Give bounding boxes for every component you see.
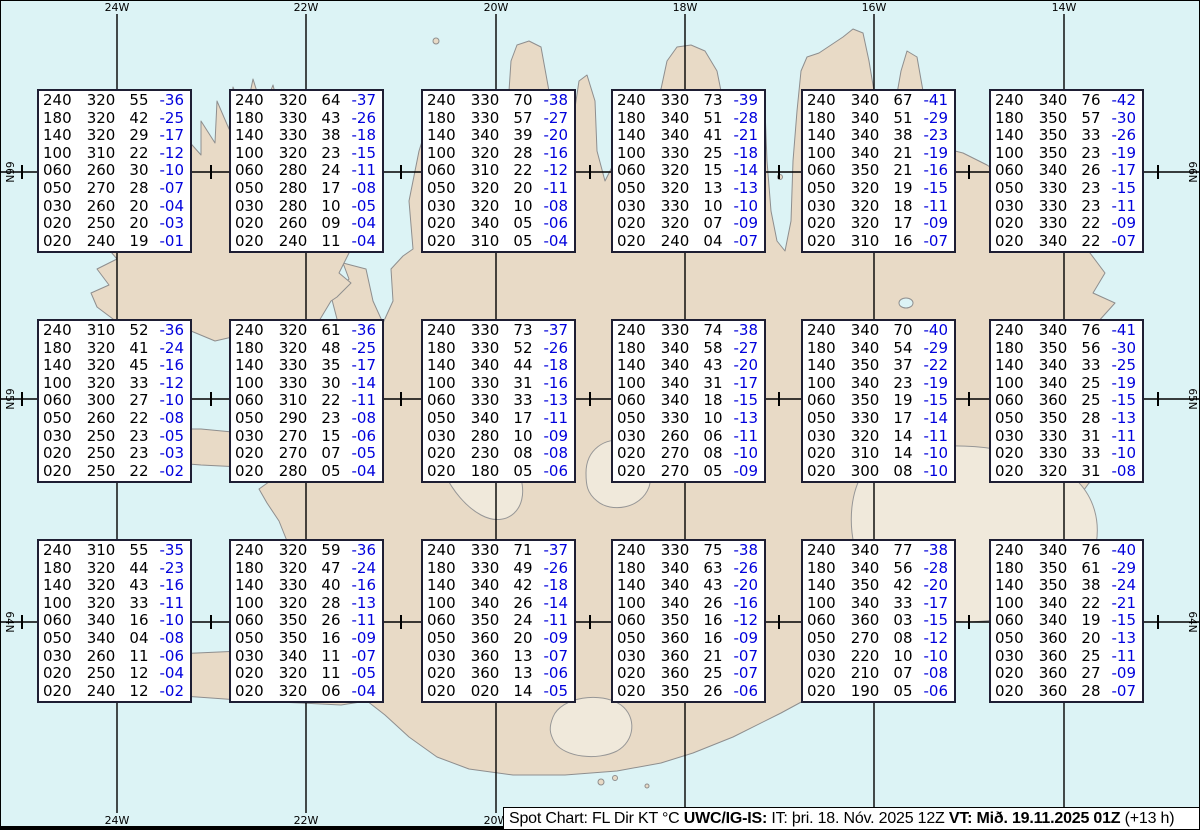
flight-level: 030 — [43, 198, 87, 216]
flight-level: 180 — [235, 340, 279, 358]
flight-level: 020 — [427, 233, 471, 251]
spot-row: 10034023-19 — [807, 375, 948, 393]
spot-row: 03033010-10 — [617, 198, 758, 216]
spot-row: 10034022-21 — [995, 595, 1136, 613]
wind-speed-kt: 15 — [703, 162, 733, 180]
spot-row: 10034033-17 — [807, 595, 948, 613]
temperature-c: -15 — [924, 180, 949, 198]
temperature-c: -26 — [544, 340, 569, 358]
spot-row: 03026011-06 — [43, 648, 184, 666]
temperature-c: -20 — [734, 577, 759, 595]
wind-speed-kt: 64 — [321, 92, 351, 110]
flight-level: 240 — [617, 92, 661, 110]
flight-level: 050 — [427, 410, 471, 428]
wind-direction: 330 — [661, 322, 704, 340]
wind-direction: 190 — [851, 683, 894, 701]
flight-level: 030 — [235, 648, 279, 666]
wind-speed-kt: 48 — [321, 340, 351, 358]
wind-direction: 350 — [851, 577, 894, 595]
wind-speed-kt: 27 — [1081, 665, 1111, 683]
wind-speed-kt: 18 — [893, 198, 923, 216]
wind-direction: 330 — [661, 92, 704, 110]
temperature-c: -30 — [1112, 340, 1137, 358]
temperature-c: -10 — [924, 445, 949, 463]
lon-label-top: 20W — [484, 2, 509, 14]
wind-speed-kt: 22 — [129, 145, 159, 163]
wind-direction: 330 — [1039, 198, 1082, 216]
wind-speed-kt: 52 — [513, 340, 543, 358]
spot-row: 18035057-30 — [995, 110, 1136, 128]
wind-speed-kt: 75 — [703, 542, 733, 560]
spot-row: 18033052-26 — [427, 340, 568, 358]
lat-label-left: 64N — [3, 611, 15, 632]
wind-direction: 320 — [279, 340, 322, 358]
spot-row: 14035037-22 — [807, 357, 948, 375]
wind-speed-kt: 08 — [893, 630, 923, 648]
wind-direction: 310 — [279, 392, 322, 410]
wind-speed-kt: 33 — [129, 595, 159, 613]
wind-speed-kt: 28 — [513, 145, 543, 163]
wind-speed-kt: 27 — [129, 392, 159, 410]
wind-direction: 320 — [279, 665, 322, 683]
wind-speed-kt: 03 — [893, 612, 923, 630]
wind-speed-kt: 35 — [321, 357, 351, 375]
spot-row: 02025020-03 — [43, 215, 184, 233]
temperature-c: -11 — [734, 428, 759, 446]
flight-level: 100 — [995, 595, 1039, 613]
wind-direction: 330 — [661, 198, 704, 216]
flight-level: 180 — [995, 340, 1039, 358]
spot-row: 24034076-41 — [995, 322, 1136, 340]
wind-direction: 340 — [661, 127, 704, 145]
lon-label-top: 24W — [105, 2, 130, 14]
wind-direction: 340 — [661, 577, 704, 595]
wind-speed-kt: 28 — [1081, 683, 1111, 701]
wind-speed-kt: 77 — [893, 542, 923, 560]
spot-row: 02036027-09 — [995, 665, 1136, 683]
wind-direction: 250 — [87, 445, 130, 463]
wind-direction: 320 — [851, 198, 894, 216]
wind-direction: 240 — [87, 683, 130, 701]
glacier-myrdalsjokull — [550, 697, 632, 756]
temperature-c: -16 — [544, 375, 569, 393]
spot-row: 18034051-29 — [807, 110, 948, 128]
temperature-c: -11 — [924, 198, 949, 216]
wind-speed-kt: 19 — [1081, 612, 1111, 630]
temperature-c: -27 — [734, 340, 759, 358]
wind-speed-kt: 20 — [1081, 630, 1111, 648]
temperature-c: -21 — [734, 127, 759, 145]
flight-level: 020 — [235, 445, 279, 463]
flight-level: 240 — [807, 542, 851, 560]
wind-direction: 340 — [1039, 595, 1082, 613]
wind-direction: 340 — [1039, 92, 1082, 110]
flight-level: 100 — [427, 375, 471, 393]
temperature-c: -18 — [352, 127, 377, 145]
temperature-c: -28 — [734, 110, 759, 128]
flight-level: 180 — [807, 560, 851, 578]
wind-direction: 350 — [851, 357, 894, 375]
wind-speed-kt: 23 — [893, 375, 923, 393]
spot-row: 06033033-13 — [427, 392, 568, 410]
spot-row: 06032015-14 — [617, 162, 758, 180]
flight-level: 050 — [617, 410, 661, 428]
temperature-c: -29 — [924, 340, 949, 358]
temperature-c: -36 — [352, 322, 377, 340]
wind-direction: 340 — [661, 340, 704, 358]
flight-level: 140 — [235, 127, 279, 145]
spot-row: 14034039-20 — [427, 127, 568, 145]
spot-row: 24033073-39 — [617, 92, 758, 110]
temperature-c: -37 — [352, 92, 377, 110]
wind-direction: 340 — [851, 375, 894, 393]
wind-direction: 360 — [471, 630, 514, 648]
wind-speed-kt: 10 — [893, 648, 923, 666]
wind-direction: 340 — [661, 560, 704, 578]
wind-speed-kt: 52 — [129, 322, 159, 340]
spot-row: 10032028-16 — [427, 145, 568, 163]
wind-speed-kt: 14 — [513, 683, 543, 701]
wind-direction: 320 — [279, 542, 322, 560]
flight-level: 050 — [43, 410, 87, 428]
wind-direction: 320 — [471, 198, 514, 216]
spot-row: 10034026-14 — [427, 595, 568, 613]
wind-direction: 300 — [851, 463, 894, 481]
spot-row: 02019005-06 — [807, 683, 948, 701]
wind-direction: 340 — [279, 648, 322, 666]
temperature-c: -10 — [924, 648, 949, 666]
spot-box: 24033074-3818034058-2714034043-201003403… — [611, 319, 766, 483]
spot-row: 06034026-17 — [995, 162, 1136, 180]
flight-level: 140 — [427, 577, 471, 595]
wind-speed-kt: 42 — [893, 577, 923, 595]
flight-level: 180 — [807, 340, 851, 358]
temperature-c: -36 — [352, 542, 377, 560]
wind-speed-kt: 57 — [1081, 110, 1111, 128]
wind-speed-kt: 05 — [321, 463, 351, 481]
wind-speed-kt: 23 — [1081, 198, 1111, 216]
flight-level: 180 — [235, 560, 279, 578]
wind-direction: 210 — [851, 665, 894, 683]
wind-speed-kt: 22 — [129, 410, 159, 428]
wind-speed-kt: 22 — [513, 162, 543, 180]
wind-speed-kt: 26 — [703, 683, 733, 701]
temperature-c: -04 — [160, 198, 185, 216]
wind-speed-kt: 07 — [703, 215, 733, 233]
wind-direction: 260 — [87, 410, 130, 428]
wind-direction: 360 — [851, 612, 894, 630]
spot-row: 02032031-08 — [995, 463, 1136, 481]
wind-speed-kt: 28 — [321, 595, 351, 613]
spot-row: 05033017-14 — [807, 410, 948, 428]
wind-direction: 330 — [279, 375, 322, 393]
wind-direction: 350 — [661, 683, 704, 701]
temperature-c: -12 — [544, 162, 569, 180]
flight-level: 020 — [995, 233, 1039, 251]
temperature-c: -11 — [924, 428, 949, 446]
temperature-c: -06 — [734, 683, 759, 701]
spot-row: 14035042-20 — [807, 577, 948, 595]
wind-direction: 330 — [471, 92, 514, 110]
flight-level: 030 — [995, 198, 1039, 216]
wind-direction: 320 — [661, 180, 704, 198]
temperature-c: -08 — [1112, 463, 1137, 481]
lon-label-top: 22W — [294, 2, 319, 14]
flight-level: 060 — [807, 392, 851, 410]
island — [645, 784, 649, 788]
temperature-c: -26 — [352, 110, 377, 128]
wind-direction: 340 — [471, 215, 514, 233]
temperature-c: -11 — [544, 180, 569, 198]
temperature-c: -17 — [734, 375, 759, 393]
spot-row: 03027015-06 — [235, 428, 376, 446]
spot-row: 03036013-07 — [427, 648, 568, 666]
temperature-c: -17 — [352, 357, 377, 375]
wind-direction: 020 — [471, 683, 514, 701]
wind-speed-kt: 63 — [703, 560, 733, 578]
spot-row: 02031005-04 — [427, 233, 568, 251]
wind-direction: 320 — [279, 560, 322, 578]
wind-speed-kt: 31 — [1081, 428, 1111, 446]
spot-row: 14034038-23 — [807, 127, 948, 145]
temperature-c: -08 — [544, 445, 569, 463]
wind-direction: 310 — [87, 145, 130, 163]
temperature-c: -41 — [924, 92, 949, 110]
flight-level: 240 — [235, 92, 279, 110]
temperature-c: -13 — [1112, 630, 1137, 648]
wind-direction: 320 — [87, 375, 130, 393]
flight-level: 020 — [807, 445, 851, 463]
flight-level: 180 — [995, 110, 1039, 128]
flight-level: 060 — [427, 612, 471, 630]
spot-row: 02036013-06 — [427, 665, 568, 683]
spot-row: 10034031-17 — [617, 375, 758, 393]
flight-level: 060 — [617, 612, 661, 630]
spot-row: 18032042-25 — [43, 110, 184, 128]
wind-direction: 360 — [471, 648, 514, 666]
wind-direction: 340 — [661, 392, 704, 410]
spot-row: 03033031-11 — [995, 428, 1136, 446]
wind-direction: 320 — [279, 145, 322, 163]
temperature-c: -14 — [544, 595, 569, 613]
footer-text-bold: UWC/IG-IS: — [684, 810, 767, 828]
temperature-c: -02 — [160, 683, 185, 701]
flight-level: 180 — [235, 110, 279, 128]
wind-direction: 330 — [471, 375, 514, 393]
flight-level: 020 — [807, 215, 851, 233]
flight-level: 060 — [807, 162, 851, 180]
flight-level: 140 — [427, 127, 471, 145]
wind-speed-kt: 54 — [893, 340, 923, 358]
wind-speed-kt: 25 — [1081, 392, 1111, 410]
spot-row: 14034033-25 — [995, 357, 1136, 375]
wind-speed-kt: 11 — [321, 233, 351, 251]
spot-row: 02002014-05 — [427, 683, 568, 701]
wind-speed-kt: 25 — [1081, 375, 1111, 393]
spot-box: 24033075-3818034063-2614034043-201003402… — [611, 539, 766, 703]
wind-direction: 320 — [87, 577, 130, 595]
wind-speed-kt: 17 — [321, 180, 351, 198]
wind-speed-kt: 22 — [129, 463, 159, 481]
flight-level: 020 — [807, 683, 851, 701]
spot-row: 05035016-09 — [235, 630, 376, 648]
wind-speed-kt: 73 — [703, 92, 733, 110]
flight-level: 030 — [235, 428, 279, 446]
flight-level: 020 — [427, 215, 471, 233]
spot-row: 18034058-27 — [617, 340, 758, 358]
wind-speed-kt: 33 — [513, 392, 543, 410]
flight-level: 050 — [427, 630, 471, 648]
wind-direction: 330 — [471, 560, 514, 578]
spot-row: 05035028-13 — [995, 410, 1136, 428]
flight-level: 060 — [807, 612, 851, 630]
spot-row: 24033075-38 — [617, 542, 758, 560]
flight-level: 140 — [43, 127, 87, 145]
spot-row: 02026009-04 — [235, 215, 376, 233]
wind-speed-kt: 24 — [321, 162, 351, 180]
spot-row: 18033049-26 — [427, 560, 568, 578]
temperature-c: -36 — [160, 92, 185, 110]
wind-speed-kt: 33 — [1081, 357, 1111, 375]
temperature-c: -12 — [734, 612, 759, 630]
spot-row: 05028017-08 — [235, 180, 376, 198]
flight-level: 060 — [427, 392, 471, 410]
flight-level: 140 — [807, 127, 851, 145]
wind-speed-kt: 67 — [893, 92, 923, 110]
wind-speed-kt: 26 — [703, 595, 733, 613]
flight-level: 180 — [427, 110, 471, 128]
flight-level: 240 — [995, 92, 1039, 110]
wind-speed-kt: 59 — [321, 542, 351, 560]
wind-direction: 280 — [471, 428, 514, 446]
spot-row: 03026020-04 — [43, 198, 184, 216]
spot-row: 06035021-16 — [807, 162, 948, 180]
temperature-c: -20 — [734, 357, 759, 375]
temperature-c: -13 — [544, 392, 569, 410]
wind-speed-kt: 20 — [129, 215, 159, 233]
wind-direction: 320 — [851, 215, 894, 233]
spot-row: 10032023-15 — [235, 145, 376, 163]
wind-speed-kt: 04 — [703, 233, 733, 251]
temperature-c: -40 — [1112, 542, 1137, 560]
lake — [899, 298, 913, 308]
flight-level: 050 — [807, 630, 851, 648]
spot-row: 05036020-13 — [995, 630, 1136, 648]
wind-direction: 280 — [279, 463, 322, 481]
lon-label-top: 16W — [862, 2, 887, 14]
wind-speed-kt: 76 — [1081, 322, 1111, 340]
wind-speed-kt: 58 — [703, 340, 733, 358]
spot-row: 06031022-12 — [427, 162, 568, 180]
temperature-c: -16 — [160, 357, 185, 375]
temperature-c: -15 — [924, 392, 949, 410]
spot-box: 24032055-3618032042-2514032029-171003102… — [37, 89, 192, 253]
wind-direction: 320 — [279, 683, 322, 701]
spot-row: 02034022-07 — [995, 233, 1136, 251]
temperature-c: -08 — [160, 410, 185, 428]
temperature-c: -04 — [352, 215, 377, 233]
spot-row: 02032007-09 — [617, 215, 758, 233]
spot-row: 06026030-10 — [43, 162, 184, 180]
spot-row: 14033035-17 — [235, 357, 376, 375]
temperature-c: -38 — [544, 92, 569, 110]
flight-level: 240 — [43, 322, 87, 340]
temperature-c: -20 — [924, 577, 949, 595]
wind-speed-kt: 38 — [893, 127, 923, 145]
spot-row: 05032020-11 — [427, 180, 568, 198]
wind-direction: 320 — [851, 428, 894, 446]
spot-row: 05027028-07 — [43, 180, 184, 198]
flight-level: 100 — [235, 595, 279, 613]
temperature-c: -20 — [544, 127, 569, 145]
temperature-c: -05 — [160, 428, 185, 446]
wind-direction: 340 — [471, 595, 514, 613]
wind-direction: 220 — [851, 648, 894, 666]
wind-direction: 330 — [661, 145, 704, 163]
wind-direction: 350 — [661, 612, 704, 630]
wind-direction: 250 — [87, 665, 130, 683]
wind-speed-kt: 71 — [513, 542, 543, 560]
wind-direction: 340 — [851, 542, 894, 560]
wind-speed-kt: 05 — [513, 215, 543, 233]
flight-level: 100 — [807, 145, 851, 163]
wind-direction: 350 — [1039, 577, 1082, 595]
wind-speed-kt: 20 — [129, 198, 159, 216]
spot-row: 24033070-38 — [427, 92, 568, 110]
flight-level: 180 — [427, 340, 471, 358]
flight-level: 140 — [617, 127, 661, 145]
spot-row: 14034042-18 — [427, 577, 568, 595]
flight-level: 240 — [43, 542, 87, 560]
spot-row: 06035016-12 — [617, 612, 758, 630]
spot-row: 05033010-13 — [617, 410, 758, 428]
wind-direction: 310 — [87, 542, 130, 560]
temperature-c: -37 — [544, 542, 569, 560]
spot-row: 02025022-02 — [43, 463, 184, 481]
flight-level: 060 — [427, 162, 471, 180]
flight-level: 240 — [807, 92, 851, 110]
wind-speed-kt: 10 — [513, 428, 543, 446]
spot-row: 03022010-10 — [807, 648, 948, 666]
wind-speed-kt: 13 — [513, 665, 543, 683]
spot-row: 18033057-27 — [427, 110, 568, 128]
temperature-c: -09 — [352, 630, 377, 648]
temperature-c: -04 — [352, 233, 377, 251]
wind-direction: 330 — [1039, 428, 1082, 446]
wind-speed-kt: 05 — [703, 463, 733, 481]
wind-speed-kt: 28 — [129, 180, 159, 198]
spot-row: 06036003-15 — [807, 612, 948, 630]
temperature-c: -06 — [160, 648, 185, 666]
spot-row: 10034026-16 — [617, 595, 758, 613]
wind-direction: 270 — [851, 630, 894, 648]
wind-speed-kt: 43 — [703, 357, 733, 375]
spot-row: 02032017-09 — [807, 215, 948, 233]
temperature-c: -10 — [160, 612, 185, 630]
wind-speed-kt: 17 — [893, 215, 923, 233]
wind-direction: 360 — [471, 665, 514, 683]
wind-speed-kt: 07 — [321, 445, 351, 463]
wind-direction: 350 — [471, 612, 514, 630]
temperature-c: -15 — [1112, 612, 1137, 630]
spot-row: 10032033-11 — [43, 595, 184, 613]
footer-text: (+13 h) — [1120, 810, 1174, 828]
wind-direction: 350 — [1039, 340, 1082, 358]
spot-row: 03026006-11 — [617, 428, 758, 446]
wind-direction: 270 — [279, 428, 322, 446]
spot-row: 02024019-01 — [43, 233, 184, 251]
wind-direction: 340 — [851, 340, 894, 358]
